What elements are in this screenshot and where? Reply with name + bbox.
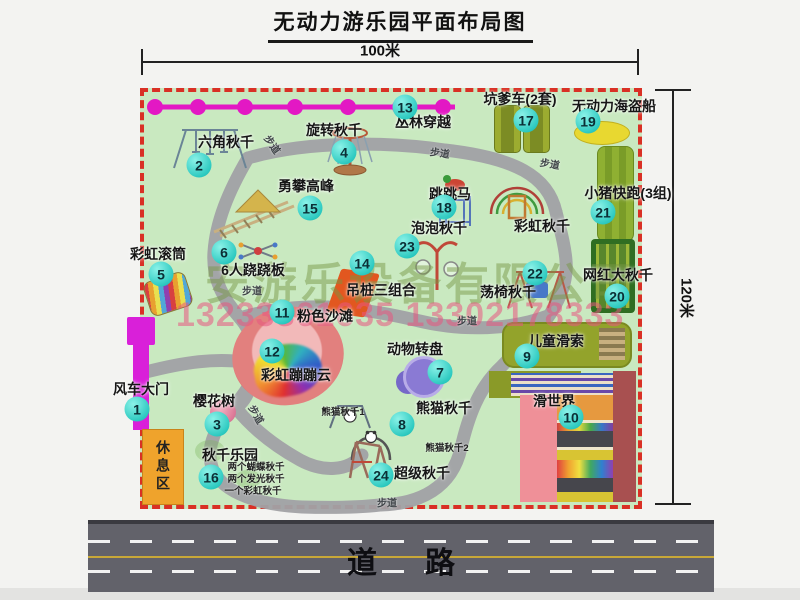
windmill-gate bbox=[133, 344, 149, 430]
dim-right-line bbox=[672, 90, 674, 505]
title-wrap: 无动力游乐园平面布局图 bbox=[0, 6, 800, 43]
slide-world-left-wall bbox=[520, 395, 557, 502]
slide-world-slides bbox=[557, 395, 613, 502]
road: 道路 bbox=[88, 520, 714, 592]
swing-park-sketch-2 bbox=[235, 470, 261, 488]
pit-cart-track-1 bbox=[494, 105, 521, 153]
animal-carousel bbox=[403, 356, 445, 398]
slide-rainbow-2 bbox=[557, 460, 613, 478]
slide-orange bbox=[557, 395, 613, 420]
slide-world-right-wall bbox=[613, 371, 636, 502]
slide-yellow-2 bbox=[557, 492, 613, 502]
slide-yellow-1 bbox=[557, 450, 613, 460]
rest-area-label: 休息区 bbox=[153, 440, 173, 494]
dim-right-tick-bottom bbox=[655, 503, 691, 505]
pit-cart-track-2 bbox=[523, 105, 550, 153]
page-title: 无动力游乐园平面布局图 bbox=[268, 6, 533, 43]
sakura-tree bbox=[210, 400, 236, 424]
slide-dark-1 bbox=[557, 431, 613, 447]
slide-dark-2 bbox=[557, 478, 613, 492]
dim-top-tick-left bbox=[141, 49, 143, 75]
dim-top-label: 100米 bbox=[360, 40, 400, 61]
rest-area: 休息区 bbox=[142, 429, 184, 505]
slide-world-tracks bbox=[511, 373, 618, 396]
windmill-gate-top bbox=[127, 317, 155, 345]
swing-park-sketch-1 bbox=[195, 440, 225, 462]
dim-right-label: 120米 bbox=[677, 278, 698, 318]
dim-right-tick-top bbox=[655, 89, 691, 91]
pig-run-track bbox=[597, 146, 634, 242]
road-label: 道路 bbox=[88, 538, 714, 582]
pirate-ship-pad bbox=[574, 121, 630, 145]
park-layout-page: 无动力游乐园平面布局图 100米 120米 bbox=[0, 0, 800, 600]
dim-top-line bbox=[142, 61, 638, 63]
dim-top-tick-right bbox=[637, 49, 639, 75]
slide-rainbow-1 bbox=[557, 423, 613, 431]
watermark-phone: 13233861635 13302178333 bbox=[176, 296, 624, 335]
